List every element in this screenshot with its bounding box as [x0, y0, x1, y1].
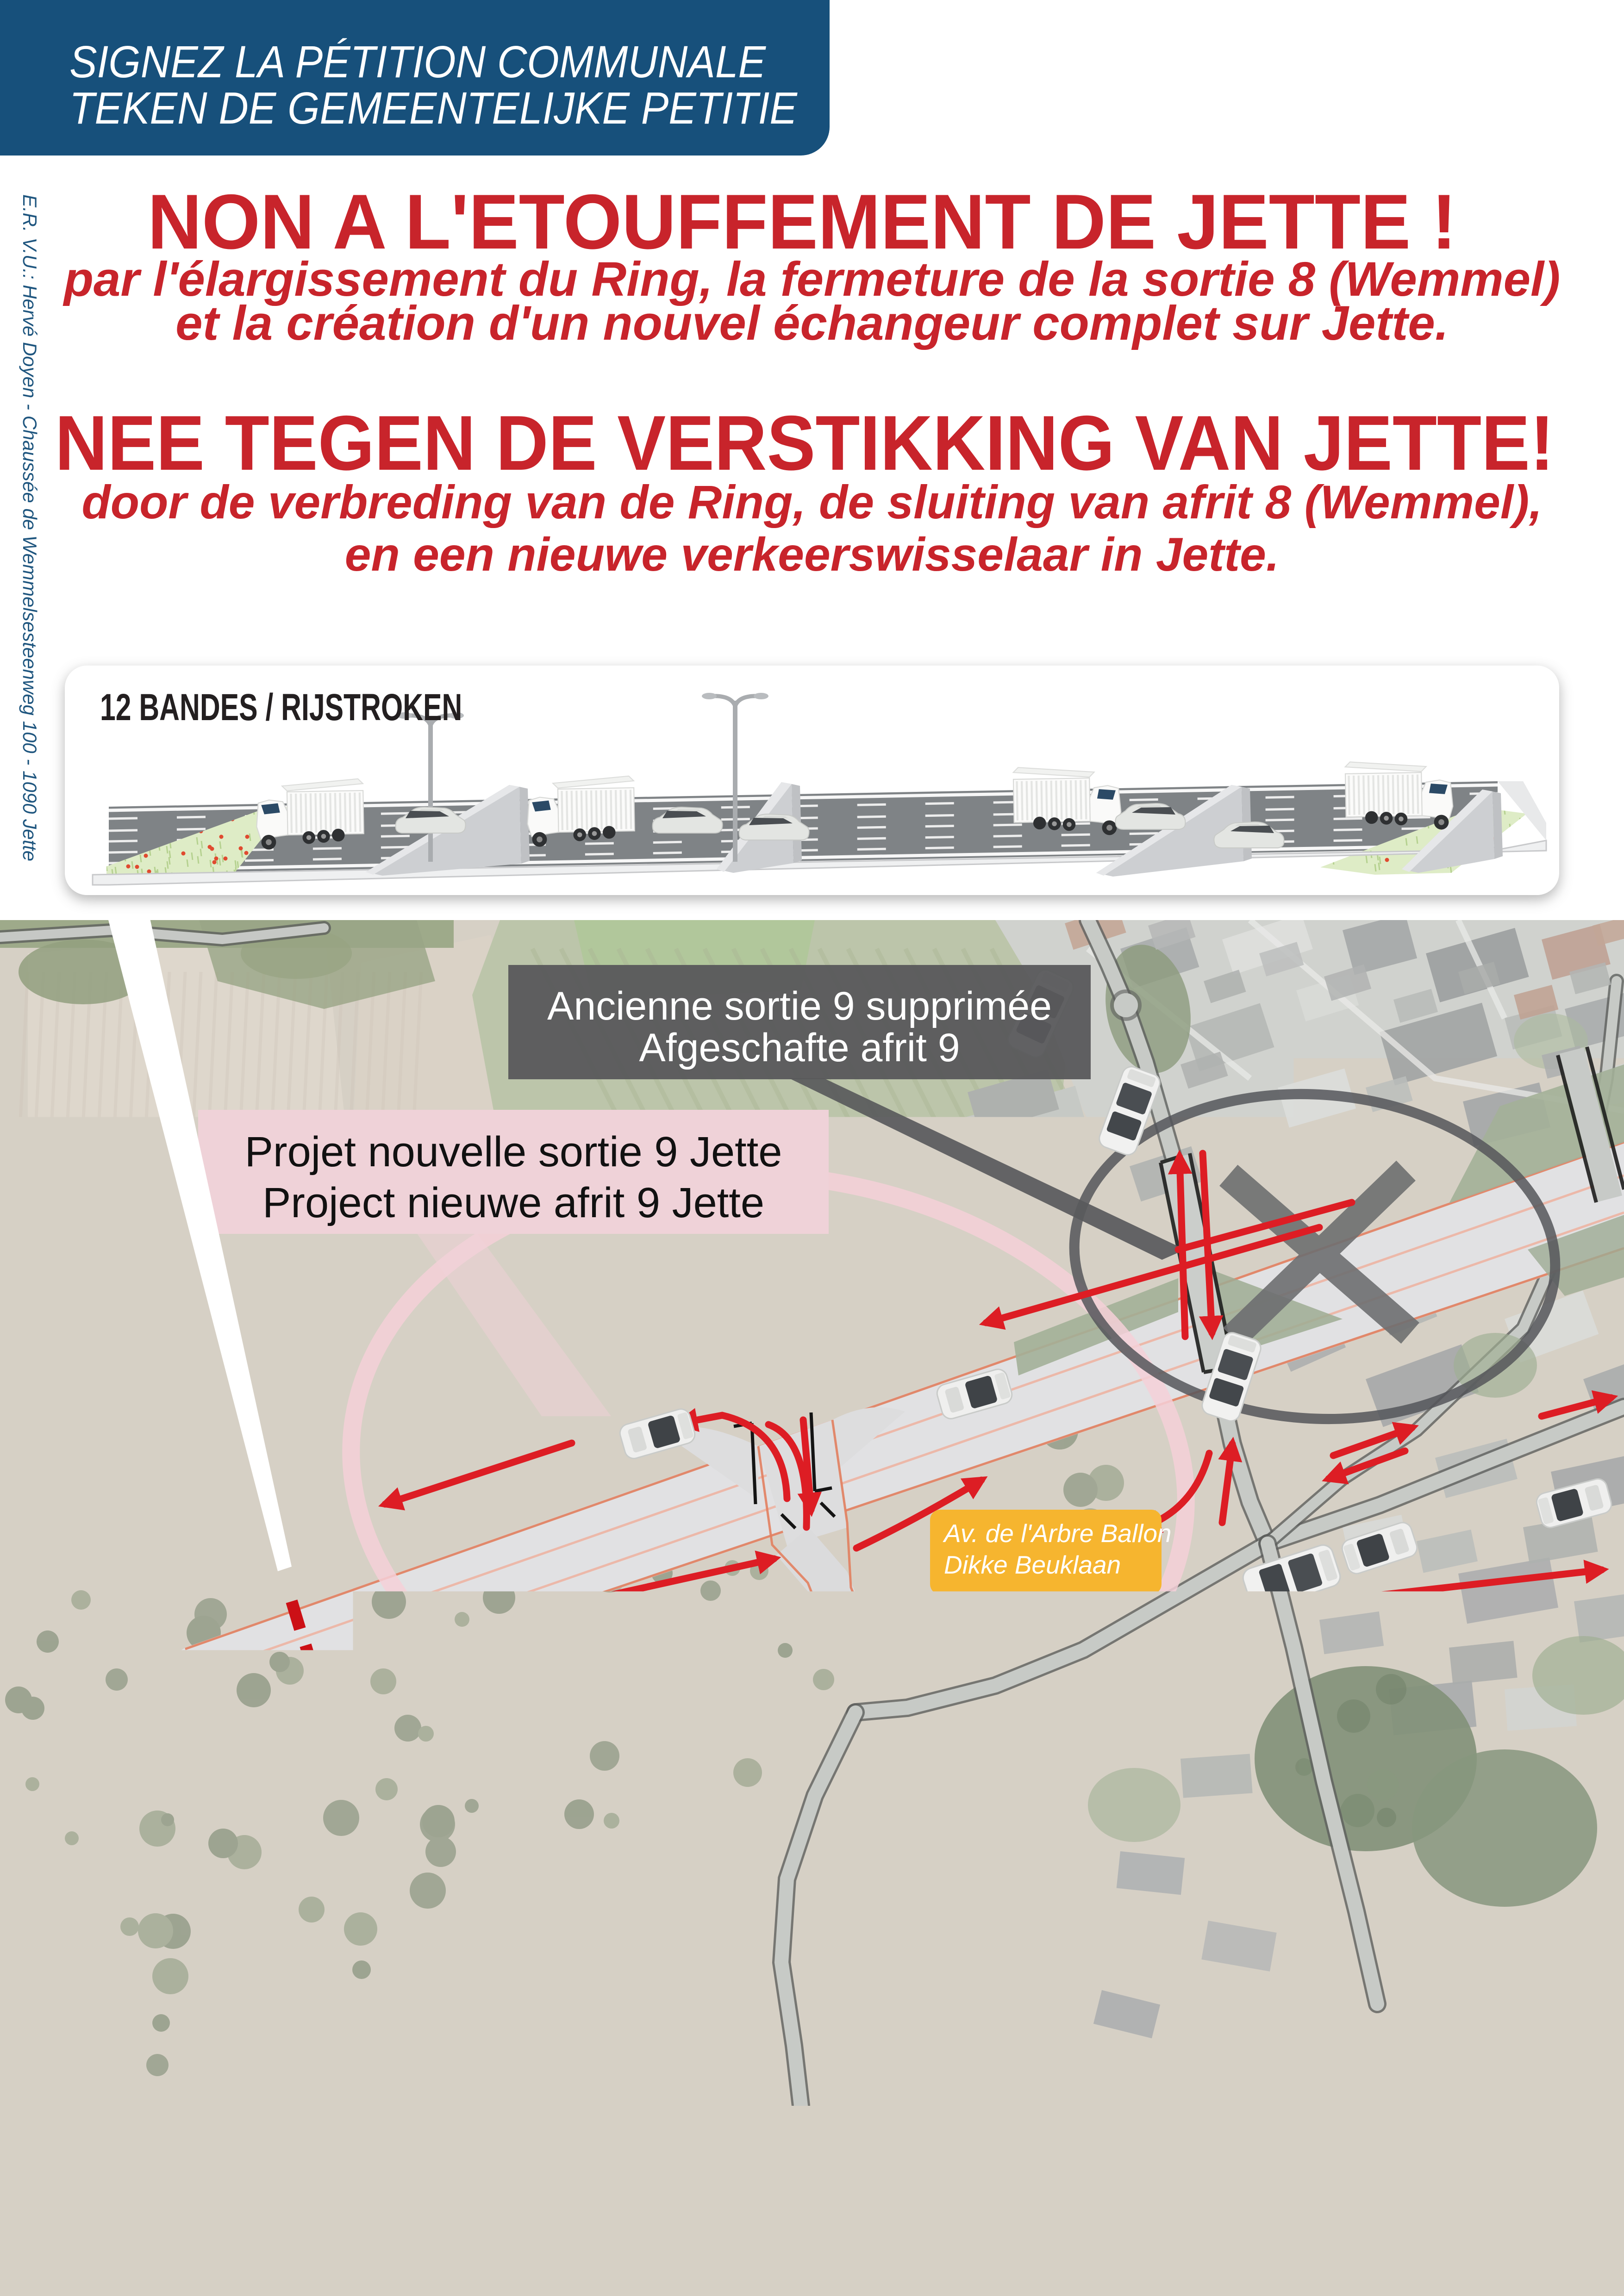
- svg-text:Jette: Jette: [1306, 2107, 1564, 2257]
- svg-text:Afgeschafte afrit 9: Afgeschafte afrit 9: [639, 1026, 960, 1070]
- svg-text:Dikke Beuklaan: Dikke Beuklaan: [944, 1550, 1121, 1579]
- svg-text:Av. de l'Arbre Ballon: Av. de l'Arbre Ballon: [943, 1519, 1172, 1548]
- svg-text:Project nieuwe afrit 9 Jette: Project nieuwe afrit 9 Jette: [262, 1179, 764, 1226]
- svg-text:Tentoonstellingslaan: Tentoonstellingslaan: [1392, 1685, 1623, 1714]
- svg-text:Jardins de Jette: Jardins de Jette: [960, 1995, 1140, 2024]
- svg-text:Ancienne sortie 9 supprimée: Ancienne sortie 9 supprimée: [547, 984, 1052, 1028]
- svg-text:Tuinen van Jette: Tuinen van Jette: [960, 2027, 1147, 2055]
- svg-text:Projet nouvelle sortie 9 Jette: Projet nouvelle sortie 9 Jette: [245, 1128, 782, 1176]
- svg-text:Av. de l'Exposition: Av. de l'Exposition: [1390, 1654, 1597, 1682]
